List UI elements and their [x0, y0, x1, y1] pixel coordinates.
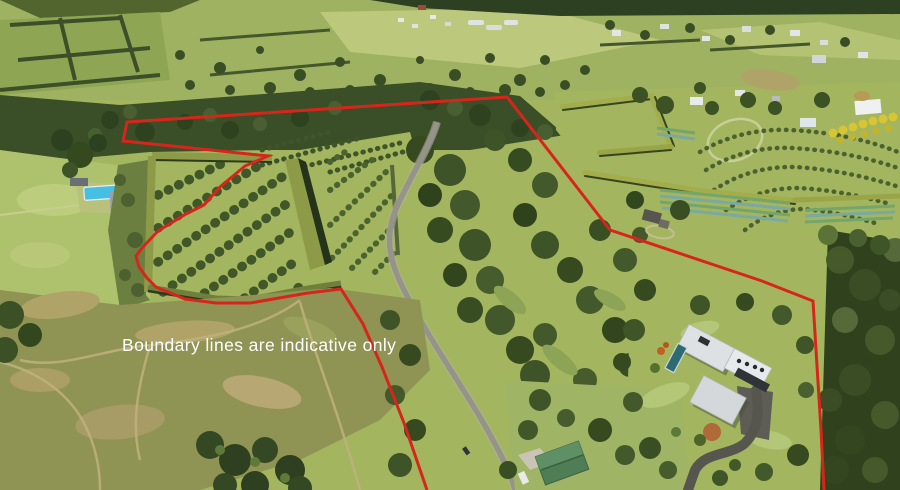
boundary-disclaimer: Boundary lines are indicative only — [122, 335, 396, 355]
aerial-photo-canvas: Boundary lines are indicative only — [0, 0, 900, 490]
aerial-photo: Boundary lines are indicative only — [0, 0, 900, 490]
orange-shrub — [657, 347, 665, 355]
